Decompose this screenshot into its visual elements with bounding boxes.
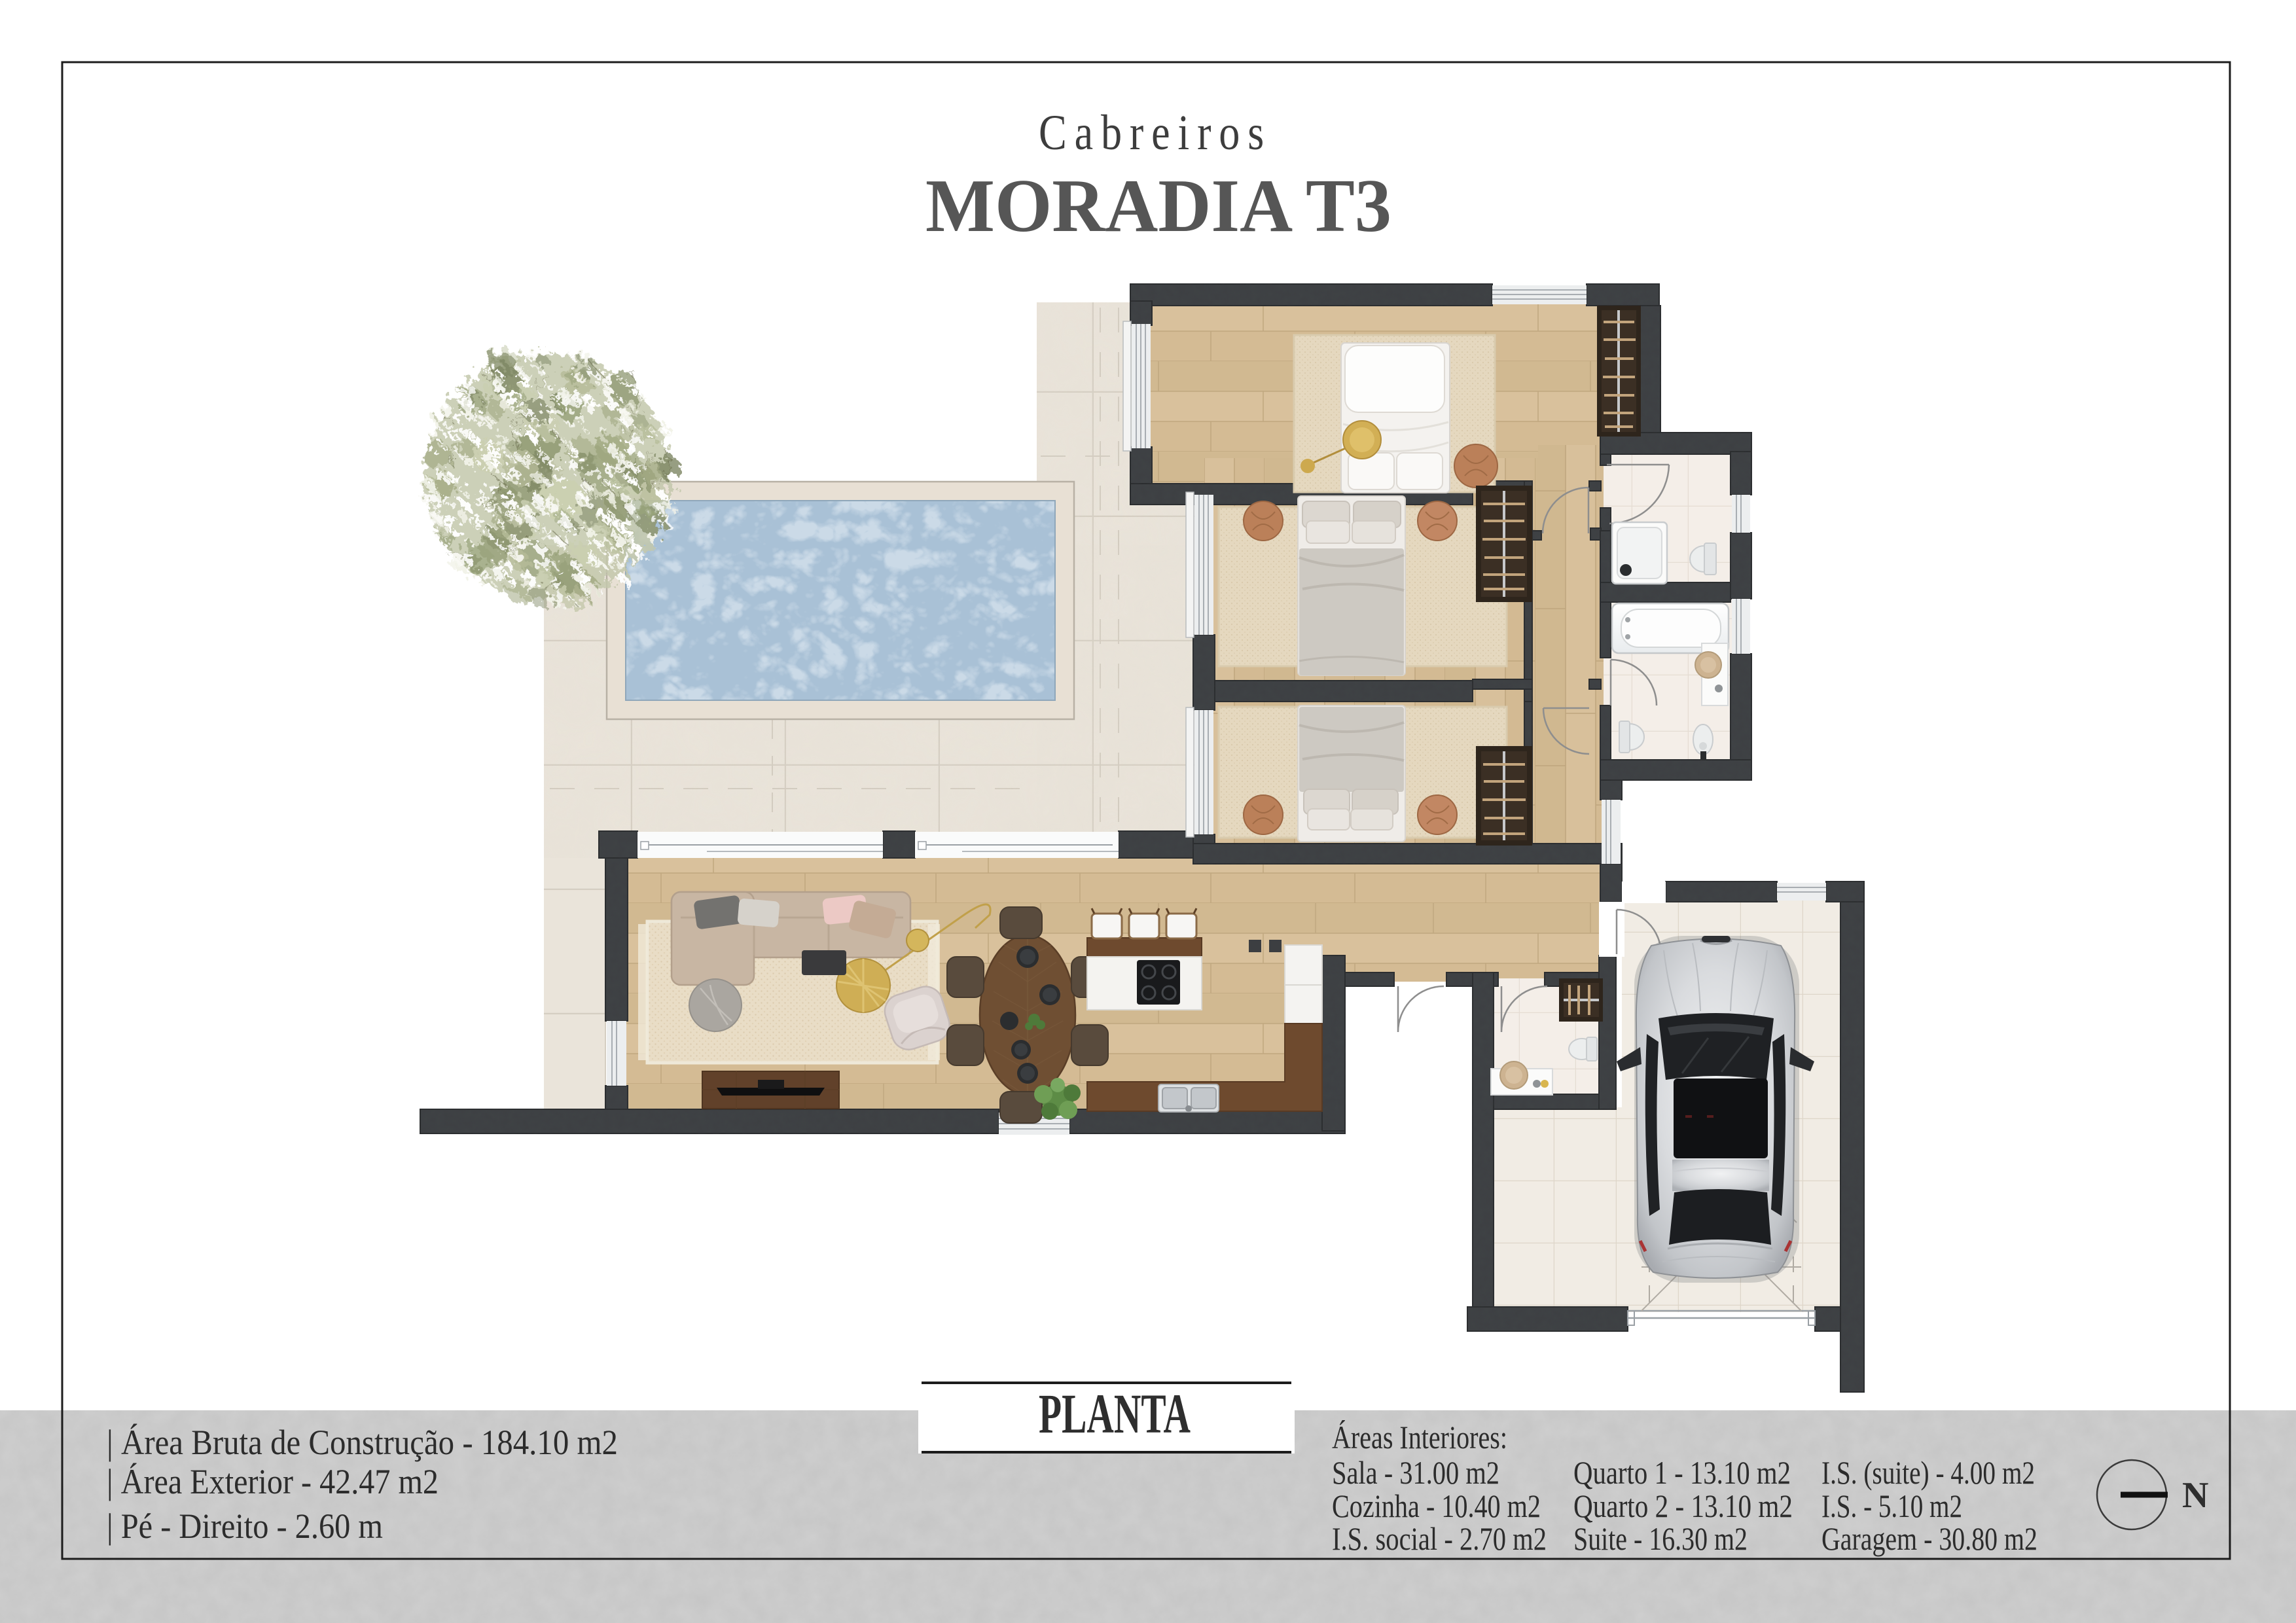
svg-text:N: N <box>2182 1475 2208 1516</box>
svg-text:| Área Bruta de Construção - 1: | Área Bruta de Construção - 184.10 m2 <box>107 1423 618 1462</box>
svg-text:Cozinha - 10.40 m2: Cozinha - 10.40 m2 <box>1332 1488 1541 1524</box>
svg-text:Suite - 16.30 m2: Suite - 16.30 m2 <box>1573 1520 1748 1557</box>
svg-text:I.S. - 5.10 m2: I.S. - 5.10 m2 <box>1821 1488 1962 1524</box>
svg-text:PLANTA: PLANTA <box>1039 1382 1191 1445</box>
svg-text:I.S. (suite) - 4.00 m2: I.S. (suite) - 4.00 m2 <box>1821 1454 2035 1491</box>
svg-text:| Área Exterior - 42.47 m2: | Área Exterior - 42.47 m2 <box>107 1462 439 1501</box>
svg-text:I.S. social - 2.70 m2: I.S. social - 2.70 m2 <box>1332 1520 1547 1557</box>
svg-text:Garagem - 30.80 m2: Garagem - 30.80 m2 <box>1821 1520 2037 1557</box>
svg-text:Quarto 2 - 13.10 m2: Quarto 2 - 13.10 m2 <box>1573 1488 1793 1524</box>
svg-text:Quarto 1 - 13.10 m2: Quarto 1 - 13.10 m2 <box>1573 1454 1791 1491</box>
svg-text:Sala - 31.00 m2: Sala - 31.00 m2 <box>1332 1454 1499 1491</box>
svg-text:Cabreiros: Cabreiros <box>1039 105 1272 160</box>
svg-text:| Pé - Direito - 2.60 m: | Pé - Direito - 2.60 m <box>107 1507 383 1546</box>
svg-text:Áreas Interiores:: Áreas Interiores: <box>1332 1419 1507 1455</box>
svg-text:MORADIA T3: MORADIA T3 <box>925 164 1391 248</box>
